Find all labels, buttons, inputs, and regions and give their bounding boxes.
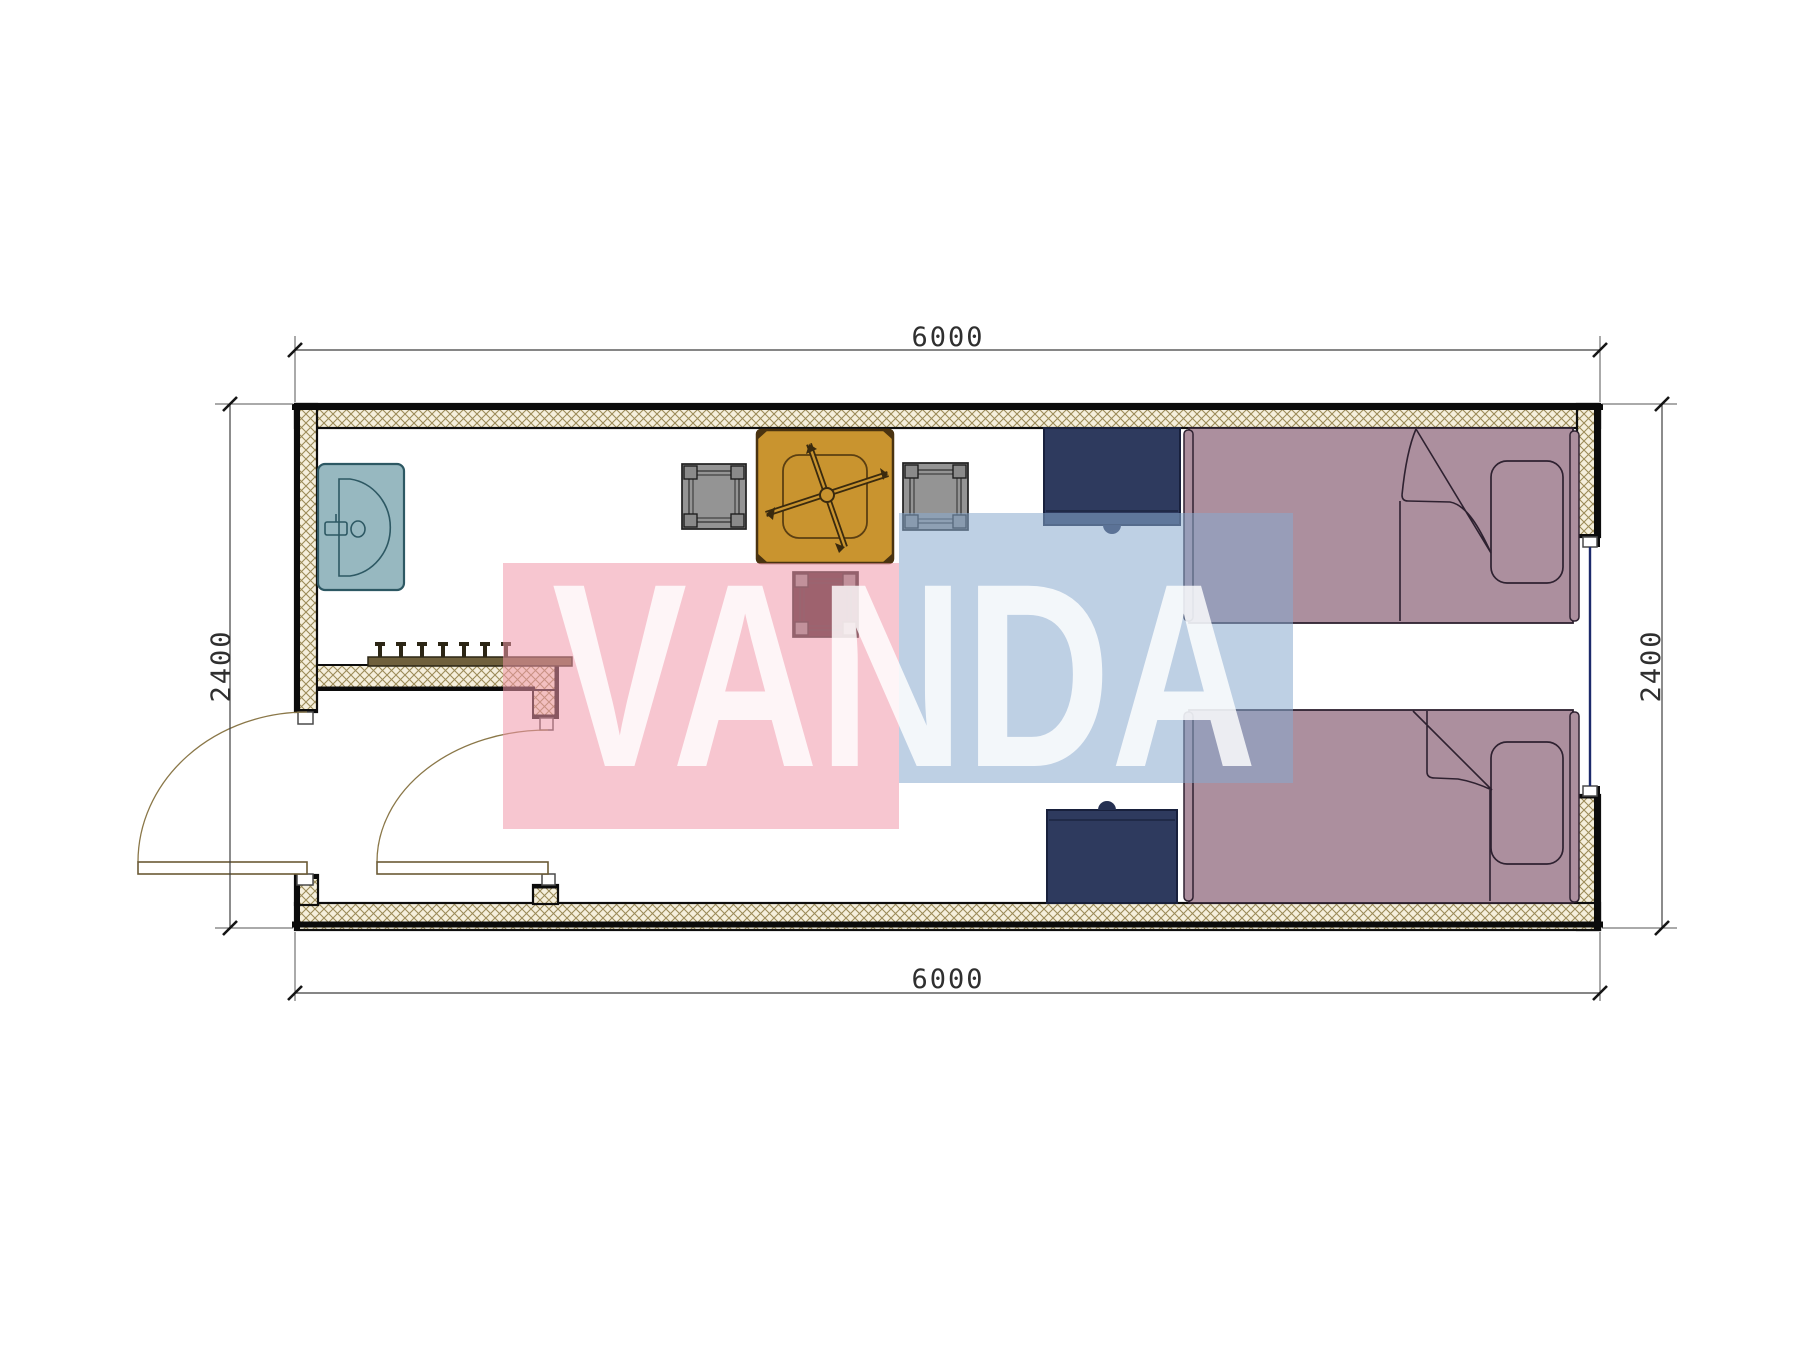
door-jamb [542,874,555,885]
dim-label-left: 2400 [206,629,237,702]
pillow [1491,742,1563,864]
dimension-right: 2400 [1602,397,1677,935]
door-swing-arc [138,712,307,862]
dim-label-right: 2400 [1636,629,1667,702]
door-jamb [298,712,313,724]
washbasin [318,464,404,590]
window-jamb [1583,786,1597,796]
door-jamb [297,874,313,885]
dim-label-top: 6000 [911,322,984,353]
footboard [1570,431,1579,621]
dimension-bottom: 6000 [288,932,1607,1001]
dim-label-bottom: 6000 [911,964,984,995]
floor-plan-page: 6000 6000 2400 2400 VANDA [0,0,1800,1350]
door-leaf [377,862,548,874]
dimension-top: 6000 [288,322,1607,402]
footboard [1570,712,1579,902]
exterior-door [138,712,307,874]
dimension-left: 2400 [206,397,293,935]
floor-plan-svg: 6000 6000 2400 2400 VANDA [0,0,1800,1350]
door-leaf [138,862,307,874]
coat-hooks [375,642,511,657]
stool-left [682,464,746,529]
pillow [1491,461,1563,583]
watermark-text: VANDA [552,529,1257,822]
window-jamb [1583,537,1597,547]
